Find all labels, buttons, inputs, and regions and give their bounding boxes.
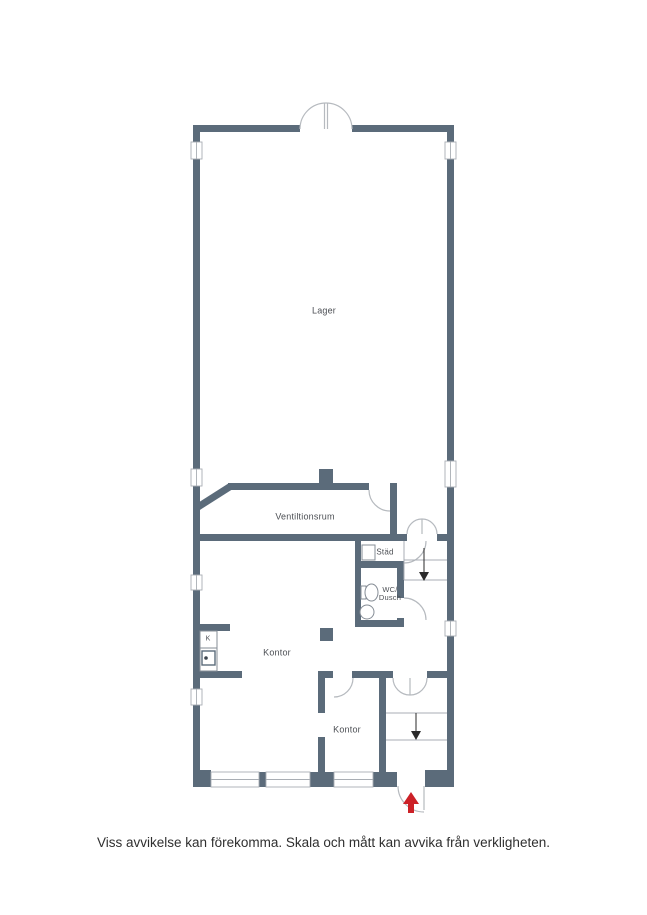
window xyxy=(191,575,202,590)
window xyxy=(445,461,456,487)
door-kontor-lower xyxy=(334,678,353,697)
room-label-ventilation: Ventiltionsrum xyxy=(275,513,334,522)
room-label-kontor-upper: Kontor xyxy=(263,649,291,658)
floorplan-page: Lager Ventiltionsrum Städ WC/ Dusch Kont… xyxy=(0,0,647,915)
window xyxy=(191,689,202,705)
toilet-icon xyxy=(361,584,378,601)
window xyxy=(445,621,456,636)
floorplan-drawing xyxy=(0,0,647,915)
column-block xyxy=(320,628,333,641)
room-label-wc-dusch: WC/ Dusch xyxy=(379,586,401,602)
window xyxy=(191,142,202,159)
door-wc xyxy=(404,598,426,620)
kitchen-k-label: K xyxy=(206,635,211,644)
disclaimer-text: Viss avvikelse kan förekomma. Skala och … xyxy=(0,835,647,850)
room-label-lager: Lager xyxy=(312,307,336,316)
room-label-stad: Städ xyxy=(376,548,393,557)
stairs-down-arrow xyxy=(411,731,421,740)
chimney-block xyxy=(319,469,333,483)
double-door-hall-lower xyxy=(393,678,427,695)
diagonal-wall xyxy=(198,486,231,507)
double-door-hall-upper xyxy=(407,519,437,534)
cabinet-icon xyxy=(362,545,375,560)
entrance-arrow-icon xyxy=(403,792,419,813)
wc-label-line2: Dusch xyxy=(379,594,401,602)
door-ventilation xyxy=(369,490,390,511)
room-label-kontor-lower: Kontor xyxy=(333,726,361,735)
stairs-lower xyxy=(386,713,447,740)
stove-icon xyxy=(202,651,215,665)
window xyxy=(266,772,310,787)
window xyxy=(334,772,373,787)
window xyxy=(191,469,202,486)
window xyxy=(211,772,259,787)
double-door-top xyxy=(300,103,352,129)
window xyxy=(445,142,456,159)
sink-icon xyxy=(360,605,374,619)
